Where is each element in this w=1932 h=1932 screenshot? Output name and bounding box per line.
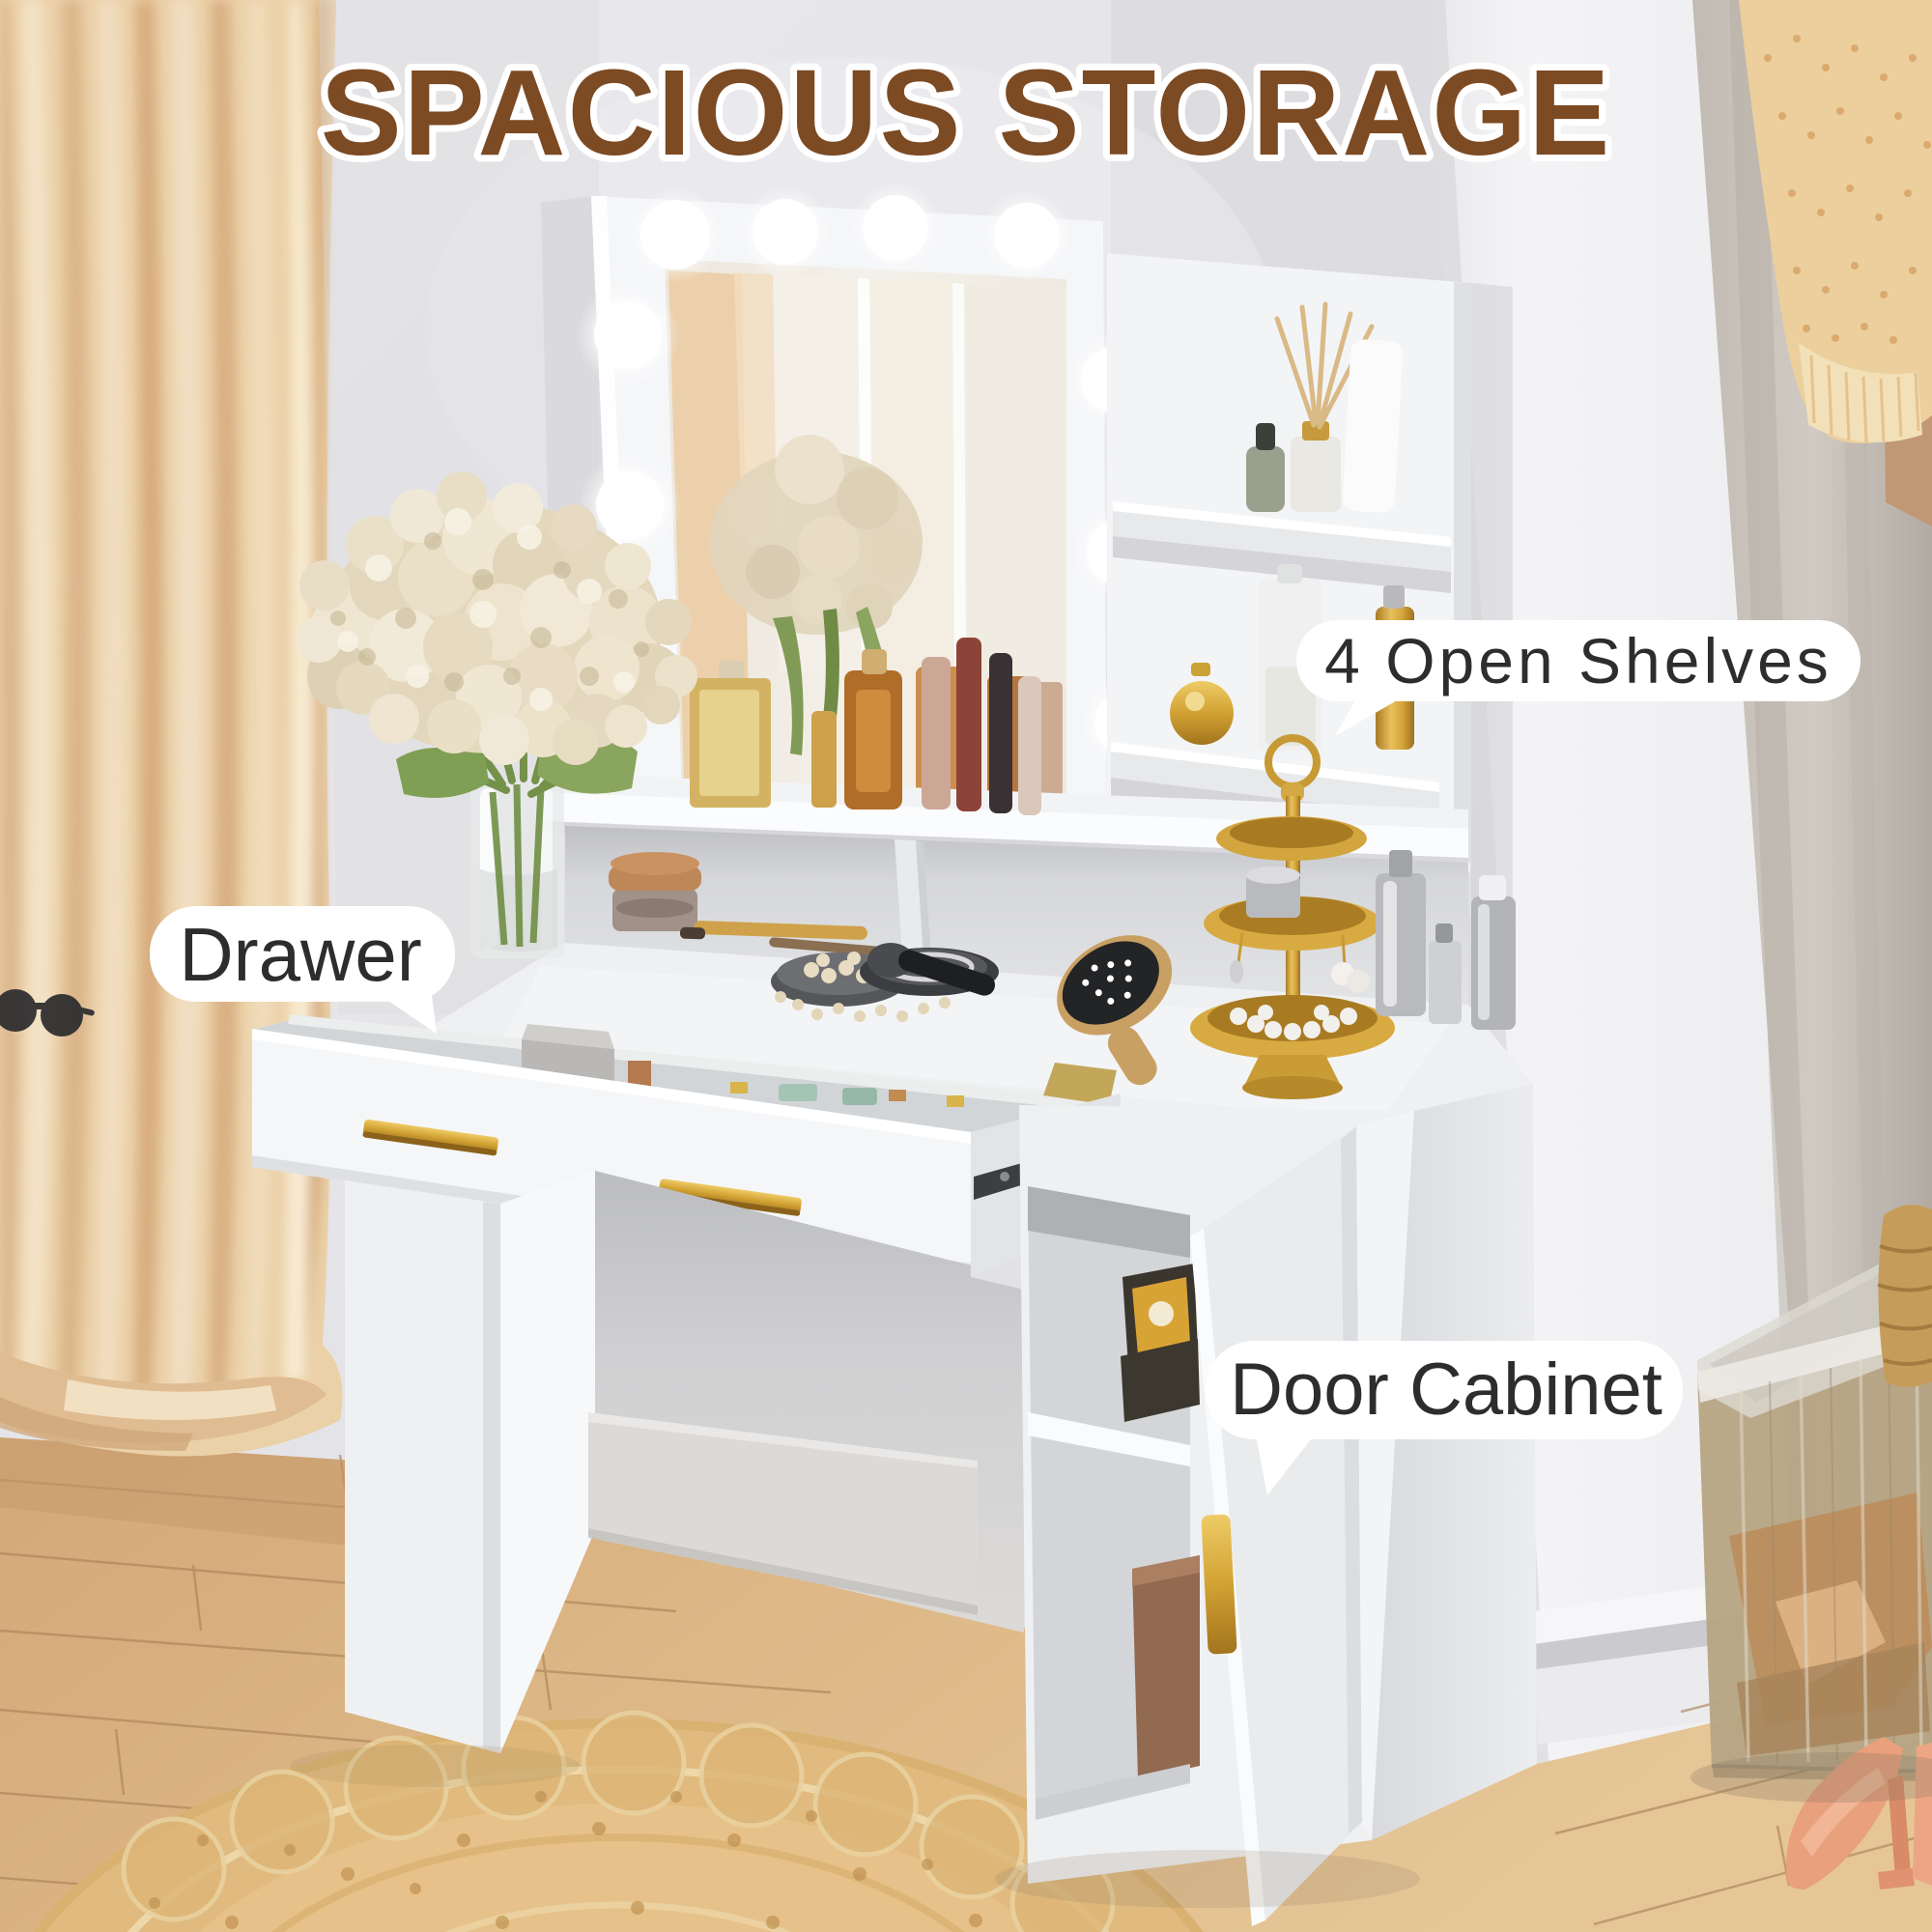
svg-text:Door Cabinet: Door Cabinet bbox=[1230, 1349, 1662, 1431]
svg-text:SPACIOUS STORAGE: SPACIOUS STORAGE bbox=[321, 44, 1612, 181]
svg-text:Drawer: Drawer bbox=[179, 912, 421, 997]
svg-text:4 Open Shelves: 4 Open Shelves bbox=[1324, 625, 1833, 696]
